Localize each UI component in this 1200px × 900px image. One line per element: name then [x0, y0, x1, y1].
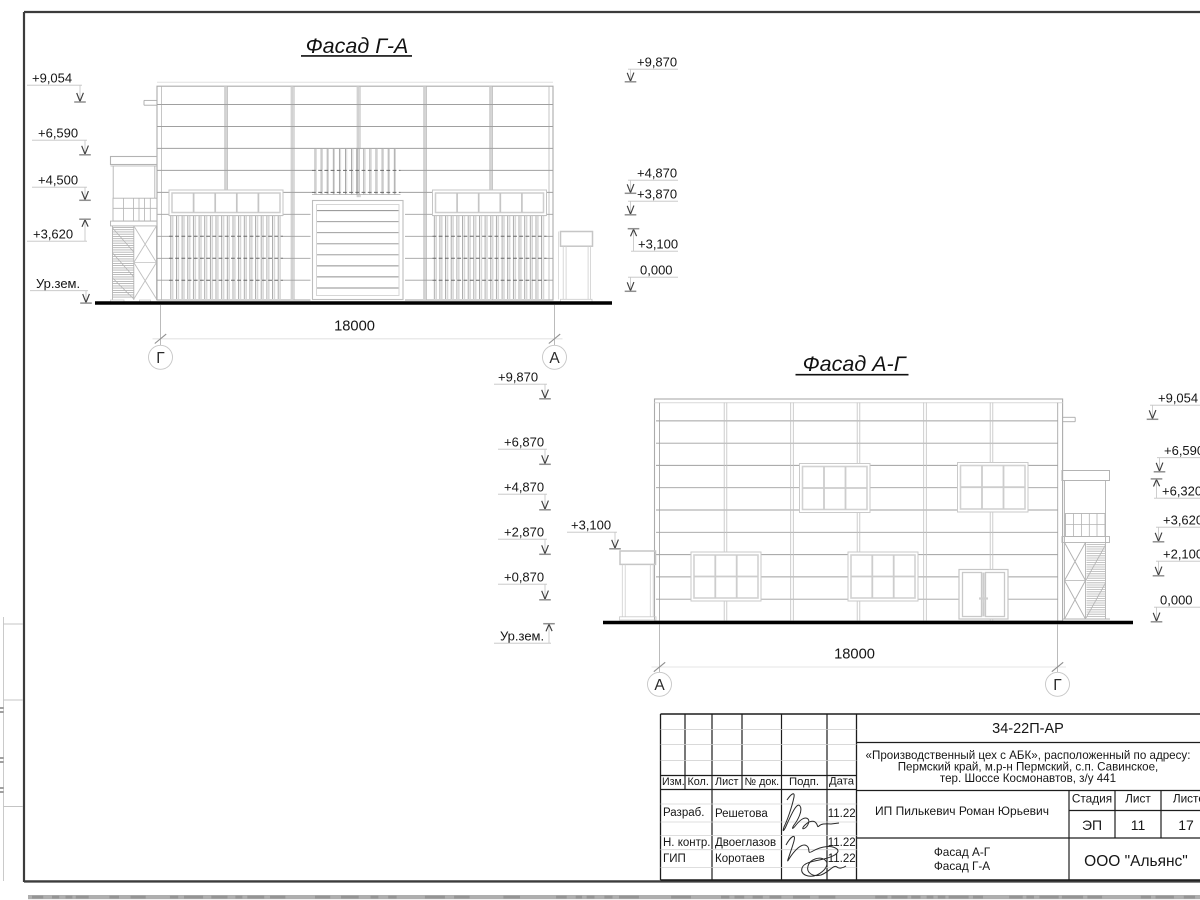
svg-text:ЭП: ЭП — [1082, 817, 1102, 833]
svg-text:ГИП: ГИП — [663, 853, 686, 865]
svg-text:0,000: 0,000 — [1160, 593, 1193, 608]
svg-text:+4,500: +4,500 — [38, 173, 78, 188]
svg-text:+2,870: +2,870 — [504, 525, 544, 540]
svg-text:Стадия: Стадия — [1072, 792, 1112, 806]
svg-text:+4,870: +4,870 — [637, 166, 677, 181]
svg-text:11.22: 11.22 — [828, 808, 856, 820]
svg-text:+6,590: +6,590 — [1164, 443, 1200, 458]
svg-text:+4,870: +4,870 — [504, 480, 544, 495]
svg-text:+6,320: +6,320 — [1162, 484, 1200, 499]
svg-text:Фасад Г-А: Фасад Г-А — [934, 859, 990, 873]
svg-text:+6,870: +6,870 — [504, 435, 544, 450]
svg-text:А: А — [654, 677, 665, 694]
svg-text:34-22П-АР: 34-22П-АР — [992, 721, 1064, 737]
svg-text:тер. Шоссе Космонавтов, з/у 44: тер. Шоссе Космонавтов, з/у 441 — [940, 772, 1116, 785]
svg-text:+3,100: +3,100 — [638, 237, 678, 252]
svg-text:Листов: Листов — [1173, 792, 1200, 806]
svg-text:+6,590: +6,590 — [38, 126, 78, 141]
svg-text:Разраб.: Разраб. — [663, 807, 704, 819]
svg-text:+9,870: +9,870 — [637, 55, 677, 70]
svg-text:Решетова: Решетова — [715, 808, 768, 820]
svg-text:+9,054: +9,054 — [1158, 391, 1198, 406]
svg-text:Коротаев: Коротаев — [715, 853, 765, 865]
svg-text:+3,870: +3,870 — [637, 187, 677, 202]
svg-text:+9,870: +9,870 — [498, 370, 538, 385]
svg-text:18000: 18000 — [834, 647, 875, 663]
svg-text:Лист: Лист — [715, 776, 739, 788]
svg-text:Подп.: Подп. — [789, 776, 819, 788]
svg-text:№ док.: № док. — [745, 776, 780, 788]
svg-text:Дата: Дата — [829, 776, 855, 788]
svg-text:А: А — [549, 350, 560, 367]
svg-text:Лист: Лист — [1125, 792, 1151, 806]
svg-text:ООО "Альянс": ООО "Альянс" — [1084, 853, 1188, 870]
svg-text:+2,100: +2,100 — [1163, 547, 1200, 562]
svg-text:+3,620: +3,620 — [1163, 513, 1200, 528]
svg-text:+0,870: +0,870 — [504, 570, 544, 585]
svg-text:Ур.зем.: Ур.зем. — [36, 276, 80, 291]
svg-text:18000: 18000 — [334, 319, 375, 335]
svg-text:Двоеглазов: Двоеглазов — [715, 837, 776, 849]
svg-text:Ур.зем.: Ур.зем. — [500, 629, 544, 644]
svg-text:+9,054: +9,054 — [32, 71, 72, 86]
svg-text:+3,100: +3,100 — [571, 518, 611, 533]
svg-text:17: 17 — [1178, 817, 1194, 833]
svg-text:11.22: 11.22 — [828, 853, 856, 865]
svg-text:Г: Г — [156, 350, 165, 367]
svg-text:ИП Пилькевич Роман Юрьевич: ИП Пилькевич Роман Юрьевич — [875, 804, 1049, 818]
svg-text:Кол.: Кол. — [688, 776, 709, 788]
svg-text:Фасад А-Г: Фасад А-Г — [803, 352, 908, 376]
svg-text:Изм.: Изм. — [662, 776, 685, 788]
svg-text:Г: Г — [1053, 677, 1062, 694]
svg-text:0,000: 0,000 — [640, 263, 673, 278]
svg-text:Фасад Г-А: Фасад Г-А — [306, 34, 409, 58]
svg-text:Фасад А-Г: Фасад А-Г — [934, 845, 991, 859]
svg-text:+3,620: +3,620 — [33, 227, 73, 242]
svg-text:11: 11 — [1131, 817, 1146, 833]
svg-text:Н. контр.: Н. контр. — [663, 837, 710, 849]
